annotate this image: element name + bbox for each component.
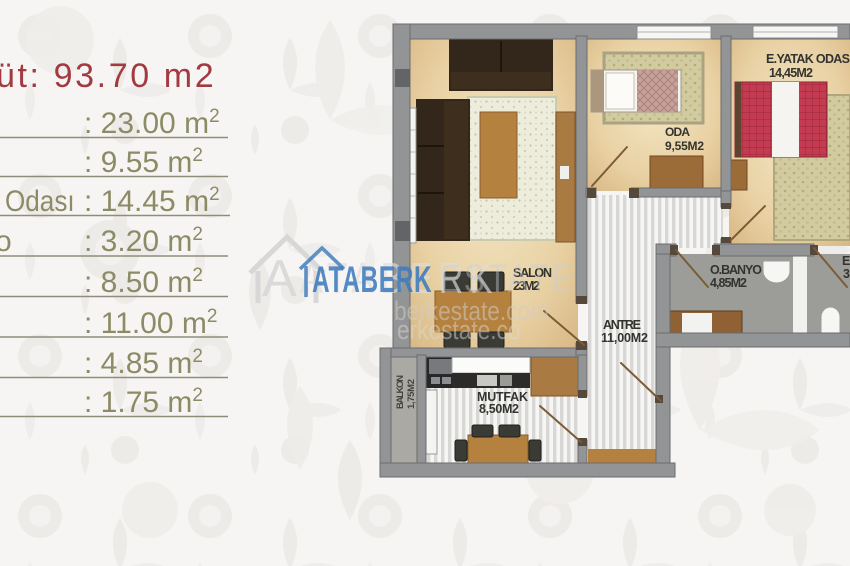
svg-text:: 1.75 m2: : 1.75 m2 <box>84 385 203 419</box>
svg-text:BALKON: BALKON <box>395 375 406 409</box>
svg-text:erkestate.co: erkestate.co <box>397 315 520 345</box>
svg-text:: 9.55 m2: : 9.55 m2 <box>84 145 203 179</box>
svg-text:ANTRE: ANTRE <box>603 318 641 332</box>
svg-text:ATABERK: ATABERK <box>312 259 432 300</box>
svg-text:: 11.00 m2: : 11.00 m2 <box>84 306 217 340</box>
svg-text:: 8.50 m2: : 8.50 m2 <box>84 265 203 299</box>
svg-text:: 14.45 m2: : 14.45 m2 <box>84 184 220 218</box>
svg-text:9,55M2: 9,55M2 <box>665 139 704 153</box>
svg-text:O.BANYO: O.BANYO <box>710 263 762 277</box>
svg-text:1,75M2: 1,75M2 <box>406 379 417 409</box>
svg-text:14,45M2: 14,45M2 <box>769 66 813 80</box>
svg-text:11,00M2: 11,00M2 <box>601 331 648 345</box>
svg-text:E.: E. <box>842 254 850 268</box>
svg-text:E.YATAK ODAS: E.YATAK ODAS <box>766 52 850 66</box>
svg-text:o: o <box>0 225 12 258</box>
svg-text:A: A <box>262 250 297 308</box>
svg-text:Odası: Odası <box>5 184 75 217</box>
svg-text:4,85M2: 4,85M2 <box>710 276 747 290</box>
svg-text:8,50M2: 8,50M2 <box>479 402 519 416</box>
svg-text:üt: 93.70 m2: üt: 93.70 m2 <box>0 57 216 95</box>
svg-text:: 23.00 m2: : 23.00 m2 <box>84 106 220 140</box>
svg-text:3,: 3, <box>843 267 850 281</box>
svg-text:: 4.85 m2: : 4.85 m2 <box>84 346 203 380</box>
svg-text:ESTATE: ESTATE <box>440 256 575 301</box>
svg-text:: 3.20 m2: : 3.20 m2 <box>84 224 203 258</box>
svg-text:ODA: ODA <box>665 125 690 139</box>
